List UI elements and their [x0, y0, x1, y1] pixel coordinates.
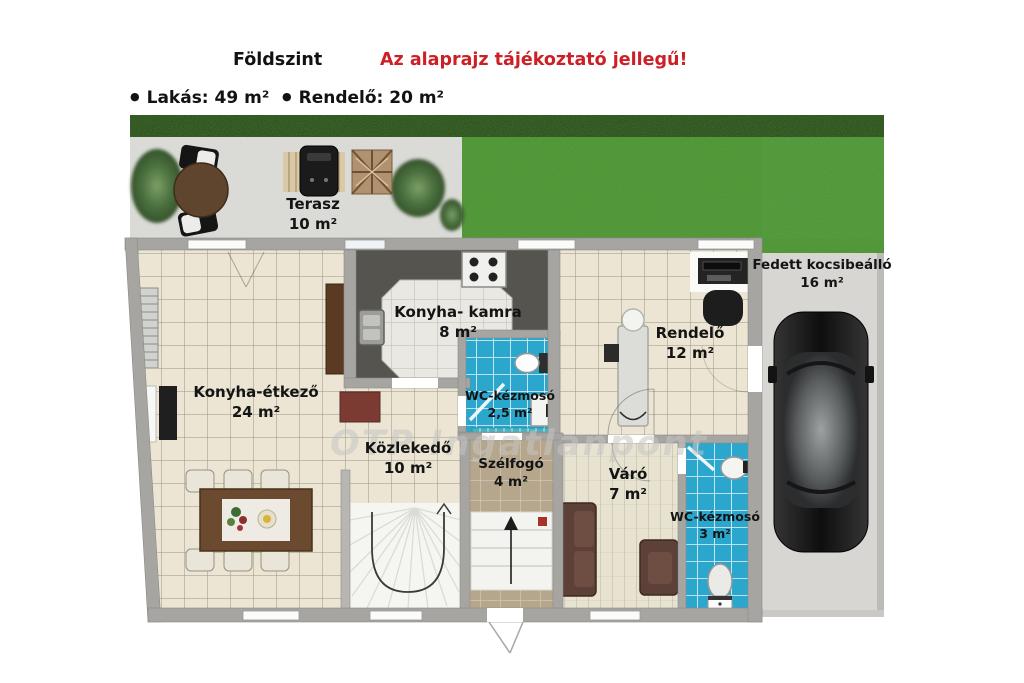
- room-name: Közlekedő: [365, 438, 452, 458]
- room-label-szelfogo: Szélfogó 4 m²: [478, 455, 543, 491]
- room-label-terasz: Terasz 10 m²: [286, 194, 340, 235]
- room-name: WC-kézmosó: [670, 509, 760, 526]
- room-area: 10 m²: [365, 458, 452, 478]
- room-name: Szélfogó: [478, 455, 543, 473]
- room-area: 24 m²: [193, 402, 318, 422]
- office-chair-icon: [703, 290, 743, 326]
- car-icon: [768, 312, 874, 552]
- room-name: Terasz: [286, 194, 340, 214]
- hall-cabinet-icon: [340, 392, 380, 422]
- marker-red: [538, 517, 547, 526]
- room-area: 7 m²: [609, 484, 648, 504]
- stove-icon: [462, 252, 506, 287]
- grill-icon: [283, 146, 345, 196]
- toilet-icon: [708, 564, 732, 609]
- room-area: 10 m²: [286, 214, 340, 234]
- sofa-icon: [560, 503, 596, 596]
- room-label-wc-kezmoso-nagy: WC-kézmosó 3 m²: [670, 509, 760, 543]
- room-label-varo: Váró 7 m²: [609, 464, 648, 505]
- cabinet-icon: [159, 386, 177, 440]
- desk-icon: [690, 252, 748, 292]
- room-area: 8 m²: [394, 322, 522, 342]
- toilet-icon: [515, 353, 549, 373]
- floorplan-page: OTP Ingatlanpont Földszint Az alaprajz t…: [0, 0, 1024, 683]
- room-name: WC-kézmosó: [465, 388, 555, 405]
- room-name: Konyha-étkező: [193, 382, 318, 402]
- room-name: Konyha- kamra: [394, 302, 522, 322]
- bullet-icon: ●: [282, 90, 292, 103]
- room-area: 12 m²: [656, 343, 725, 363]
- room-area: 3 m²: [670, 526, 760, 543]
- disclaimer-text: Az alaprajz tájékoztató jellegű!: [380, 50, 687, 70]
- room-area: 2,5 m²: [465, 405, 555, 422]
- armchair-icon: [640, 540, 678, 595]
- room-label-kozlekedo: Közlekedő 10 m²: [365, 438, 452, 479]
- firewood-icon: [352, 150, 392, 194]
- room-label-konyha-kamra: Konyha- kamra 8 m²: [394, 302, 522, 343]
- legend-label: Lakás: 49 m²: [147, 88, 270, 108]
- legend-label: Rendelő: 20 m²: [299, 88, 444, 108]
- kitchen-sink-icon: [359, 310, 384, 345]
- bullet-icon: ●: [130, 90, 140, 103]
- room-area: 16 m²: [752, 274, 891, 292]
- room-label-konyha-etkezo: Konyha-étkező 24 m²: [193, 382, 318, 423]
- room-name: Váró: [609, 464, 648, 484]
- room-name: Fedett kocsibeálló: [752, 256, 891, 274]
- room-area: 4 m²: [478, 473, 543, 491]
- room-label-rendelo: Rendelő 12 m²: [656, 323, 725, 364]
- floor-title: Földszint: [233, 50, 322, 70]
- legend-item-lakas: ●Lakás: 49 m²: [130, 88, 269, 108]
- legend-item-rendelo: ●Rendelő: 20 m²: [282, 88, 444, 108]
- room-label-wc-kezmoso-kicsi: WC-kézmosó 2,5 m²: [465, 388, 555, 422]
- room-name: Rendelő: [656, 323, 725, 343]
- room-label-fedett-kocsibeallo: Fedett kocsibeálló 16 m²: [752, 256, 891, 292]
